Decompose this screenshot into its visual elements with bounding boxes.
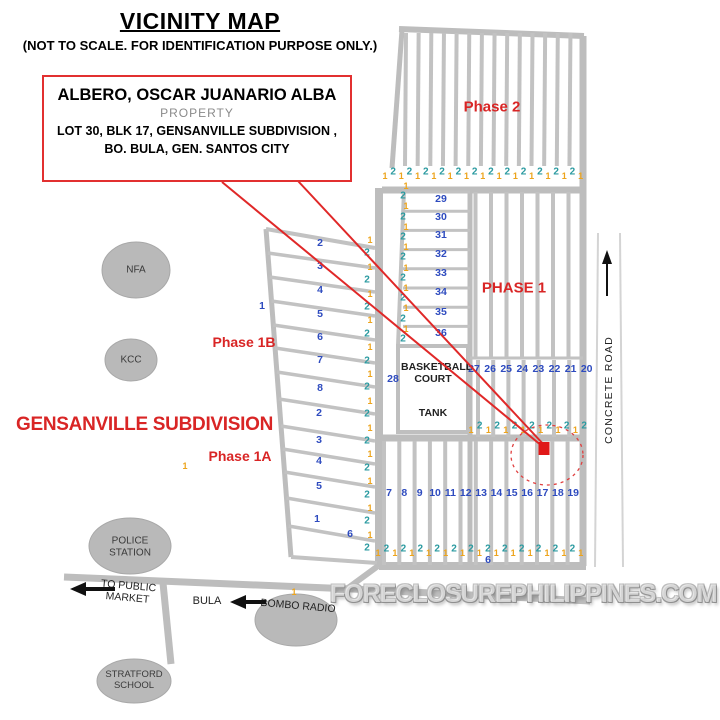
- block-number: 1: [314, 513, 320, 525]
- lot-marker: 2: [401, 544, 407, 555]
- lot-marker: 1: [403, 242, 408, 252]
- block-number: 35: [435, 306, 447, 318]
- block-number: 36: [435, 327, 447, 339]
- lot-marker: 1: [403, 283, 408, 293]
- block-number: 6: [347, 528, 353, 540]
- lot-marker: 2: [468, 544, 474, 555]
- block-number-1-vertical: 1: [259, 300, 265, 312]
- block-number: 34: [435, 286, 447, 298]
- lot-marker: 2: [364, 436, 370, 447]
- lot-marker: 1: [443, 548, 448, 558]
- lot-marker: 1: [403, 303, 408, 313]
- lot-marker: 1: [521, 425, 526, 435]
- landmark-nfa: NFA: [126, 265, 145, 276]
- lot-marker: 1: [375, 548, 380, 558]
- lot-marker: 1: [392, 548, 397, 558]
- lot-marker: 2: [502, 544, 508, 555]
- block-number: 18: [552, 487, 564, 499]
- block-number: 13: [475, 487, 487, 499]
- block-number: 30: [435, 211, 447, 223]
- lot-marker: 1: [409, 548, 414, 558]
- page-title: VICINITY MAP: [120, 8, 280, 34]
- block-number: 24: [516, 363, 528, 375]
- watermark: FORECLOSUREPHILIPPINES.COM: [330, 580, 720, 609]
- lot-marker: 2: [504, 167, 510, 178]
- lot-marker: 2: [364, 275, 370, 286]
- lot-marker: 1: [486, 425, 491, 435]
- lot-marker: 2: [364, 462, 370, 473]
- property-label: PROPERTY: [44, 106, 350, 120]
- lot-marker: 1: [480, 171, 485, 181]
- block-number: 20: [581, 363, 593, 375]
- lot-marker: 2: [364, 516, 370, 527]
- block-number: 2: [316, 407, 322, 419]
- lot-marker: 2: [570, 544, 576, 555]
- lot-marker: 2: [407, 167, 413, 178]
- lot-marker: 1: [497, 171, 502, 181]
- lot-marker: 1: [291, 587, 296, 597]
- lot-marker: 2: [537, 167, 543, 178]
- lot-marker: 1: [426, 548, 431, 558]
- lot-marker: 2: [472, 167, 478, 178]
- tank-label: TANK: [419, 407, 447, 419]
- block-number: 3: [316, 434, 322, 446]
- lot-marker: 2: [434, 544, 440, 555]
- lot-marker: 1: [367, 530, 372, 540]
- lot-marker: 1: [403, 263, 408, 273]
- lot-marker: 2: [417, 544, 423, 555]
- lot-marker: 1: [545, 171, 550, 181]
- concrete-road-label: CONCRETE ROAD: [603, 315, 615, 465]
- block-number: 2: [317, 237, 323, 249]
- lot-marker: 1: [182, 461, 187, 471]
- block-number: 11: [445, 487, 456, 499]
- block-number: 4: [316, 455, 322, 467]
- lot-marker: 1: [538, 425, 543, 435]
- lot-marker: 2: [384, 544, 390, 555]
- lot-marker: 2: [390, 167, 396, 178]
- lot-marker: 1: [367, 476, 372, 486]
- lot-marker: 2: [400, 191, 406, 202]
- lot-marker: 2: [400, 272, 406, 283]
- block-number: 25: [500, 363, 512, 375]
- block-number: 29: [435, 193, 447, 205]
- lot-marker: 1: [367, 262, 372, 272]
- block-number: 6: [485, 554, 491, 566]
- block-number: 5: [317, 308, 323, 320]
- block-number: 22: [549, 363, 561, 375]
- lot-marker: 1: [460, 548, 465, 558]
- lot-marker: 2: [553, 544, 559, 555]
- lot-marker: 2: [477, 421, 483, 432]
- block-number-28: 28: [387, 373, 399, 385]
- lot-marker: 2: [364, 302, 370, 313]
- landmark-police-station: POLICE STATION: [99, 536, 161, 559]
- lot-marker: 1: [382, 171, 387, 181]
- lot-marker: 2: [488, 167, 494, 178]
- lot-marker: 2: [456, 167, 462, 178]
- subdivision-name: GENSANVILLE SUBDIVISION: [16, 414, 273, 436]
- lot-marker: 2: [364, 409, 370, 420]
- lot-marker: 2: [400, 211, 406, 222]
- lot-marker: 1: [494, 548, 499, 558]
- lot-marker: 2: [364, 248, 370, 259]
- lot-marker: 2: [536, 544, 542, 555]
- lot-marker: 2: [400, 232, 406, 243]
- block-number: 27: [468, 363, 480, 375]
- lot-marker: 1: [403, 201, 408, 211]
- lot-marker: 1: [464, 171, 469, 181]
- lot-marker: 2: [364, 543, 370, 554]
- block-number: 10: [429, 487, 441, 499]
- lot-marker: 2: [553, 167, 559, 178]
- lot-marker: 1: [367, 396, 372, 406]
- block-number: 7: [386, 487, 392, 499]
- phase-2-label: Phase 2: [464, 99, 521, 116]
- lot-marker: 1: [513, 171, 518, 181]
- lot-marker: 2: [364, 489, 370, 500]
- bula-label: BULA: [193, 595, 222, 607]
- lot-marker: 1: [503, 425, 508, 435]
- page-subtitle: (NOT TO SCALE. FOR IDENTIFICATION PURPOS…: [5, 38, 395, 53]
- block-number: 12: [460, 487, 472, 499]
- lot-marker: 1: [403, 181, 408, 191]
- phase-1a-label: Phase 1A: [208, 448, 271, 464]
- owner-name: ALBERO, OSCAR JUANARIO ALBA: [44, 86, 350, 105]
- lot-marker: 1: [468, 425, 473, 435]
- lot-marker: 1: [529, 171, 534, 181]
- lot-marker: 1: [511, 548, 516, 558]
- address-line-2: BO. BULA, GEN. SANTOS CITY: [44, 140, 350, 158]
- block-number: 4: [317, 284, 323, 296]
- lot-marker: 2: [400, 293, 406, 304]
- lot-marker: 1: [367, 289, 372, 299]
- block-number: 26: [484, 363, 496, 375]
- basketball-court-label: BASKETBALL COURT: [401, 361, 465, 385]
- bombo-radio-label: BOMBO RADIO: [260, 597, 336, 616]
- block-number: 7: [317, 354, 323, 366]
- lot-marker: 2: [494, 421, 500, 432]
- lot-marker: 2: [529, 421, 535, 432]
- address-line-1: LOT 30, BLK 17, GENSANVILLE SUBDIVISION …: [44, 122, 350, 140]
- lot-marker: 1: [555, 425, 560, 435]
- lot-marker: 1: [367, 503, 372, 513]
- lot-marker: 2: [519, 544, 525, 555]
- lot-marker: 2: [570, 167, 576, 178]
- block-number: 5: [316, 480, 322, 492]
- lot-marker: 2: [364, 355, 370, 366]
- lot-marker: 2: [581, 421, 587, 432]
- lot-marker: 1: [578, 171, 583, 181]
- lot-marker: 1: [477, 548, 482, 558]
- lot-marker: 1: [367, 423, 372, 433]
- lot-marker: 1: [431, 171, 436, 181]
- lot-marker: 1: [562, 171, 567, 181]
- block-number: 23: [533, 363, 545, 375]
- lot-marker: 2: [364, 382, 370, 393]
- lot-marker: 1: [415, 171, 420, 181]
- block-number: 32: [435, 248, 447, 260]
- lot-marker: 1: [578, 548, 583, 558]
- property-callout: ALBERO, OSCAR JUANARIO ALBA PROPERTY LOT…: [42, 75, 352, 182]
- block-number: 31: [435, 229, 447, 241]
- lot-marker: 1: [403, 222, 408, 232]
- lot-marker: 2: [400, 334, 406, 345]
- block-number: 21: [565, 363, 577, 375]
- lot-marker: 2: [400, 313, 406, 324]
- lot-marker: 2: [451, 544, 457, 555]
- block-number: 17: [537, 487, 549, 499]
- block-number: 8: [317, 382, 323, 394]
- lot-marker: 1: [528, 548, 533, 558]
- block-number: 14: [491, 487, 503, 499]
- lot-marker: 1: [544, 548, 549, 558]
- block-number: 33: [435, 267, 447, 279]
- block-number: 8: [401, 487, 407, 499]
- lot-marker: 2: [400, 252, 406, 263]
- title-block: VICINITY MAP (NOT TO SCALE. FOR IDENTIFI…: [5, 8, 395, 53]
- lot-marker: 1: [367, 342, 372, 352]
- lot-marker: 2: [439, 167, 445, 178]
- lot-marker: 2: [512, 421, 518, 432]
- lot-marker: 2: [364, 328, 370, 339]
- lot-marker: 1: [561, 548, 566, 558]
- lot-marker: 1: [367, 315, 372, 325]
- to-public-market-label: TO PUBLIC MARKET: [84, 576, 172, 608]
- lot-marker: 1: [367, 369, 372, 379]
- phase-1b-label: Phase 1B: [212, 334, 275, 350]
- block-number: 16: [521, 487, 533, 499]
- phase-1-label: PHASE 1: [482, 280, 546, 297]
- block-number: 6: [317, 331, 323, 343]
- lot-marker: 1: [573, 425, 578, 435]
- lot-marker: 1: [399, 171, 404, 181]
- lot-marker: 1: [367, 235, 372, 245]
- landmark-stratford-school: STRATFORD SCHOOL: [99, 670, 169, 692]
- block-number: 19: [567, 487, 579, 499]
- lot-marker: 2: [423, 167, 429, 178]
- lot-marker: 1: [448, 171, 453, 181]
- lot-marker: 2: [547, 421, 553, 432]
- block-number: 9: [417, 487, 423, 499]
- landmark-kcc: KCC: [120, 355, 141, 366]
- lot-marker: 1: [403, 324, 408, 334]
- lot-marker: 1: [367, 449, 372, 459]
- vicinity-map: Phase 2 PHASE 1 Phase 1B Phase 1A GENSAN…: [0, 0, 720, 720]
- lot-marker: 2: [521, 167, 527, 178]
- lot-marker: 2: [564, 421, 570, 432]
- lot-marker: 2: [485, 544, 491, 555]
- block-number: 3: [317, 260, 323, 272]
- block-number: 15: [506, 487, 518, 499]
